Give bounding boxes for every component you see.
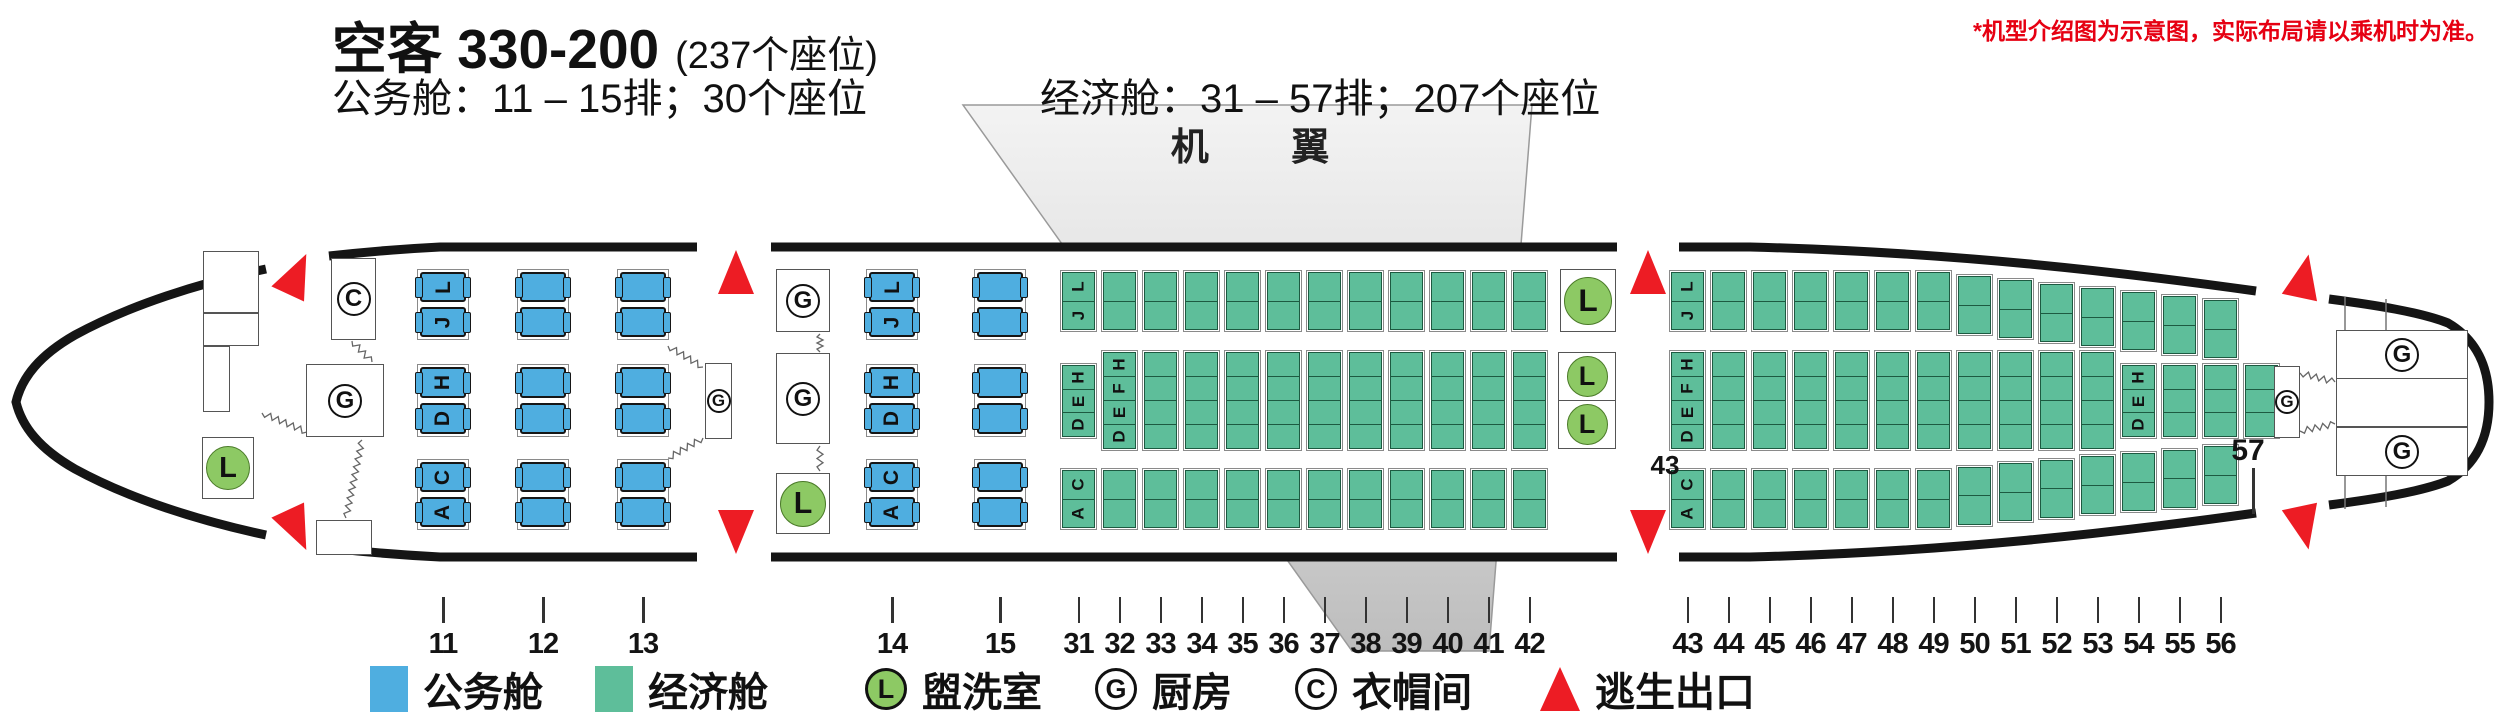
seat — [1513, 352, 1546, 377]
row-tick — [1406, 597, 1409, 623]
seat — [1226, 272, 1259, 302]
seat — [1144, 470, 1177, 500]
seat: H — [420, 367, 466, 398]
seat — [1431, 499, 1464, 529]
seat: F — [1671, 376, 1704, 401]
seat-column — [2120, 290, 2157, 352]
seat-letter: E — [2130, 395, 2147, 406]
seat-letter: A — [881, 504, 902, 519]
seat — [977, 307, 1023, 337]
seat-column — [2161, 294, 2198, 356]
row-number: 56 — [2198, 628, 2244, 661]
lavatory-icon: L — [1567, 404, 1608, 445]
compartment — [203, 346, 230, 412]
seat — [2204, 365, 2237, 390]
seat — [2040, 376, 2073, 401]
seat — [2122, 482, 2155, 512]
row-tick — [1892, 597, 1895, 623]
seat — [2122, 453, 2155, 483]
seat-letter: H — [881, 375, 902, 390]
row-tick — [1488, 597, 1491, 623]
lavatory-compartment: L — [1558, 352, 1616, 401]
seat — [1917, 301, 1950, 331]
seat — [2163, 325, 2196, 355]
seat — [1999, 424, 2032, 449]
galley-icon: G — [2385, 338, 2419, 372]
seat-column — [1183, 350, 1220, 451]
seat-column: HED — [1060, 363, 1097, 439]
galley-compartment: G — [306, 364, 384, 437]
seat — [1185, 352, 1218, 377]
seat-column — [1183, 270, 1220, 332]
seat — [1794, 400, 1827, 425]
seat — [977, 462, 1023, 492]
seat: L — [1062, 272, 1095, 302]
row-tick — [1119, 597, 1122, 623]
seat — [1226, 424, 1259, 449]
seat — [2163, 389, 2196, 414]
seat: H — [1103, 352, 1136, 377]
seat — [2040, 400, 2073, 425]
seat-column — [1874, 270, 1911, 332]
seat — [977, 497, 1023, 527]
seat-column — [1997, 278, 2034, 340]
seat: H — [1062, 365, 1095, 390]
row-tick — [1447, 597, 1450, 623]
row-number: 35 — [1220, 628, 1266, 661]
seat — [620, 367, 666, 398]
seat — [1103, 499, 1136, 529]
seat-column: HD — [866, 364, 918, 437]
seat — [1999, 463, 2032, 493]
seat-column — [2079, 286, 2116, 348]
row-tick — [442, 597, 445, 623]
row-tick — [1933, 597, 1936, 623]
seat — [520, 307, 566, 337]
seat — [1267, 400, 1300, 425]
seat: L — [420, 272, 466, 302]
seat-column — [517, 269, 569, 340]
row-number: 40 — [1425, 628, 1471, 661]
seat: D — [1671, 424, 1704, 449]
seat-column — [2161, 448, 2198, 510]
seat — [1513, 400, 1546, 425]
row-tick — [1810, 597, 1813, 623]
galley-compartment: G — [705, 363, 732, 439]
seat — [1999, 352, 2032, 377]
galley-compartment: G — [2274, 366, 2300, 438]
seat — [1308, 470, 1341, 500]
seat — [1513, 272, 1546, 302]
seat: E — [1671, 400, 1704, 425]
row-43-callout: 43 — [1643, 450, 1687, 481]
seat — [1185, 470, 1218, 500]
seat-letter: D — [881, 411, 902, 426]
seat — [1308, 301, 1341, 331]
seat — [1958, 305, 1991, 335]
seat — [1226, 352, 1259, 377]
closet-icon: C — [337, 282, 371, 316]
seat — [2081, 317, 2114, 347]
lavatory-compartment: L — [1560, 269, 1616, 332]
lavatory-compartment: L — [202, 437, 254, 499]
seat — [1712, 301, 1745, 331]
seat — [1390, 499, 1423, 529]
row-tick — [2220, 597, 2223, 623]
seat — [1308, 499, 1341, 529]
seat — [1349, 301, 1382, 331]
seat — [1185, 424, 1218, 449]
seat — [1308, 400, 1341, 425]
row-57-tick — [2252, 468, 2255, 514]
seat — [1876, 301, 1909, 331]
seat — [1753, 499, 1786, 529]
seat — [1794, 272, 1827, 302]
seat — [1103, 272, 1136, 302]
seat-column — [1224, 350, 1261, 451]
seat-column — [1429, 468, 1466, 530]
seat — [1267, 424, 1300, 449]
seat — [1185, 376, 1218, 401]
seat-letter: D — [1070, 419, 1087, 431]
seat: H — [869, 367, 915, 398]
seat — [1876, 352, 1909, 377]
seat — [1144, 400, 1177, 425]
seat-column — [2038, 350, 2075, 451]
row-tick — [1974, 597, 1977, 623]
seat — [1835, 352, 1868, 377]
seat-letter: A — [432, 504, 453, 519]
seat — [1226, 499, 1259, 529]
seat — [1226, 400, 1259, 425]
seat — [1835, 272, 1868, 302]
economy-class-info: 经济舱：31 – 57排；207个座位 — [1040, 66, 1600, 124]
seat-letter: L — [1070, 282, 1087, 292]
seat — [1917, 352, 1950, 377]
seat-column — [1142, 468, 1179, 530]
seat — [1876, 470, 1909, 500]
seat — [1753, 352, 1786, 377]
lavatory-icon: L — [206, 446, 250, 490]
seat-map-canvas: 机 翼 空客 330-200 (237个座位) 公务舱：11 – 15排；30个… — [0, 0, 2498, 717]
seat — [1835, 301, 1868, 331]
seat-column — [1470, 350, 1507, 451]
seat-column — [1915, 468, 1952, 530]
galley-compartment: G — [776, 353, 830, 444]
row-tick — [1242, 597, 1245, 623]
seat — [1144, 499, 1177, 529]
seat-column — [1792, 350, 1829, 451]
seat — [1390, 400, 1423, 425]
seat — [1185, 301, 1218, 331]
seat: D — [1062, 412, 1095, 437]
seat-column — [1915, 350, 1952, 451]
seat — [1753, 470, 1786, 500]
row-number: 14 — [869, 628, 915, 661]
seat — [1794, 376, 1827, 401]
seat: A — [869, 497, 915, 527]
row-tick — [2097, 597, 2100, 623]
seat — [2163, 450, 2196, 480]
seat-letter: J — [1070, 311, 1087, 320]
seat — [1390, 470, 1423, 500]
seat-column — [1306, 270, 1343, 332]
row-tick — [1529, 597, 1532, 623]
row-tick — [642, 597, 645, 623]
row-tick — [1687, 597, 1690, 623]
row-number: 53 — [2075, 628, 2121, 661]
seat-column — [1470, 270, 1507, 332]
row-number: 38 — [1343, 628, 1389, 661]
seat — [2040, 313, 2073, 343]
seat: H — [2122, 365, 2155, 390]
seat-column: LJ — [866, 269, 918, 340]
seat-letter: C — [1070, 479, 1087, 491]
row-number: 48 — [1870, 628, 1916, 661]
seat-column — [1429, 270, 1466, 332]
seat-column — [1183, 468, 1220, 530]
seat — [1267, 499, 1300, 529]
seat — [1185, 499, 1218, 529]
seat: D — [2122, 412, 2155, 437]
seat: D — [420, 403, 466, 434]
seat: A — [1671, 499, 1704, 529]
seat — [1513, 424, 1546, 449]
seat: J — [869, 307, 915, 337]
row-number: 15 — [977, 628, 1023, 661]
seat-column — [1265, 350, 1302, 451]
seat — [1226, 301, 1259, 331]
seat — [2081, 456, 2114, 486]
seat — [1226, 376, 1259, 401]
galley-icon: G — [786, 284, 820, 318]
seat-column — [1792, 270, 1829, 332]
seat — [1999, 280, 2032, 310]
seat — [1349, 352, 1382, 377]
seat-column — [617, 459, 669, 530]
seat-column: LJ — [1060, 270, 1097, 332]
seat — [1390, 376, 1423, 401]
row-number: 32 — [1097, 628, 1143, 661]
seat — [1349, 424, 1382, 449]
seat: C — [1062, 470, 1095, 500]
seat — [1267, 272, 1300, 302]
seat-column — [1429, 350, 1466, 451]
seat-column: CA — [1060, 468, 1097, 530]
seat-column — [1833, 350, 1870, 451]
seat-column — [1101, 270, 1138, 332]
seat — [1103, 470, 1136, 500]
seat-column — [2202, 363, 2239, 439]
seat — [1712, 424, 1745, 449]
seat — [1308, 376, 1341, 401]
seat — [1876, 376, 1909, 401]
seat — [2081, 352, 2114, 377]
seat — [1513, 301, 1546, 331]
seat — [1431, 301, 1464, 331]
row-number: 39 — [1384, 628, 1430, 661]
seat — [1712, 272, 1745, 302]
lavatory-icon: L — [1567, 356, 1608, 397]
seat-column — [1142, 270, 1179, 332]
seat — [1349, 400, 1382, 425]
seat — [1958, 495, 1991, 525]
seat — [2081, 485, 2114, 515]
seat — [1958, 467, 1991, 497]
row-tick — [2179, 597, 2182, 623]
seat — [2081, 424, 2114, 449]
seat-column — [1956, 274, 1993, 336]
seat — [620, 272, 666, 302]
seat — [977, 403, 1023, 434]
seat — [2204, 475, 2237, 505]
seat — [2163, 296, 2196, 326]
seat-column — [1915, 270, 1952, 332]
seat — [1917, 424, 1950, 449]
row-tick — [542, 597, 545, 623]
seat-column — [1265, 468, 1302, 530]
seat-column — [1956, 350, 1993, 451]
seat — [1999, 309, 2032, 339]
seat-letter: H — [432, 375, 453, 390]
seat-column — [2161, 363, 2198, 439]
seat-column: HFED — [1101, 350, 1138, 451]
seat-column — [2079, 350, 2116, 451]
row-tick — [1324, 597, 1327, 623]
row-number: 43 — [1665, 628, 1711, 661]
seat-column — [1792, 468, 1829, 530]
seat — [1472, 352, 1505, 377]
seat — [1876, 424, 1909, 449]
seat-column — [1511, 350, 1548, 451]
row-number: 50 — [1952, 628, 1998, 661]
seat — [1390, 301, 1423, 331]
seat-letter: D — [432, 411, 453, 426]
seat — [1349, 272, 1382, 302]
seat — [1876, 400, 1909, 425]
seat — [1917, 376, 1950, 401]
seat-letter: C — [432, 469, 453, 484]
seat-letter: C — [881, 469, 902, 484]
row-number: 46 — [1788, 628, 1834, 661]
row-tick — [1365, 597, 1368, 623]
seat-letter: L — [1679, 282, 1696, 292]
row-number: 51 — [1993, 628, 2039, 661]
seat: C — [420, 462, 466, 492]
seat — [1431, 352, 1464, 377]
seat-column — [1833, 468, 1870, 530]
lavatory-compartment: L — [1558, 400, 1616, 449]
seat: J — [1671, 301, 1704, 331]
seat — [520, 497, 566, 527]
seat-column: HD — [417, 364, 469, 437]
seat-column — [974, 269, 1026, 340]
seat-column: HFED — [1669, 350, 1706, 451]
seat: D — [1103, 424, 1136, 449]
seat: L — [869, 272, 915, 302]
seat — [1144, 376, 1177, 401]
row-number: 54 — [2116, 628, 2162, 661]
seat-letter: H — [2130, 371, 2147, 383]
seat-column — [1751, 350, 1788, 451]
seat: C — [869, 462, 915, 492]
seat: H — [1671, 352, 1704, 377]
row-number: 44 — [1706, 628, 1752, 661]
seat-letter: F — [1679, 383, 1696, 393]
row-57-callout: 57 — [2222, 434, 2274, 468]
seat — [1431, 470, 1464, 500]
row-number: 33 — [1138, 628, 1184, 661]
wing-label: 机 翼 — [1120, 116, 1380, 171]
seat — [1226, 470, 1259, 500]
seat — [1712, 499, 1745, 529]
row-number: 13 — [620, 628, 666, 661]
seat — [1472, 499, 1505, 529]
seat — [1753, 424, 1786, 449]
row-number: 34 — [1179, 628, 1225, 661]
seat-column — [1956, 465, 1993, 527]
seat — [1958, 352, 1991, 377]
seat-column — [1470, 468, 1507, 530]
row-tick — [1769, 597, 1772, 623]
seat — [620, 462, 666, 492]
seat — [520, 462, 566, 492]
seat — [1390, 272, 1423, 302]
seat-letter: H — [1070, 371, 1087, 383]
seat — [1876, 272, 1909, 302]
seat — [1349, 376, 1382, 401]
seat-column: LJ — [417, 269, 469, 340]
compartment — [203, 251, 259, 313]
row-tick — [1283, 597, 1286, 623]
seat — [1958, 376, 1991, 401]
seat-column — [1388, 270, 1425, 332]
row-number: 36 — [1261, 628, 1307, 661]
seat — [620, 307, 666, 337]
seat — [1349, 470, 1382, 500]
seat — [1267, 301, 1300, 331]
seat-letter: A — [1679, 507, 1696, 519]
seat — [1917, 272, 1950, 302]
seat-letter: H — [1679, 358, 1696, 370]
seat-letter: D — [1679, 430, 1696, 442]
seat-column — [1710, 350, 1747, 451]
row-number: 11 — [420, 628, 466, 661]
row-number: 37 — [1302, 628, 1348, 661]
seat-column — [2120, 451, 2157, 513]
seat-letter: L — [881, 281, 902, 294]
seat — [1431, 424, 1464, 449]
seat — [1185, 400, 1218, 425]
seat — [1472, 301, 1505, 331]
seat — [1712, 376, 1745, 401]
compartment — [316, 520, 372, 555]
row-tick — [1160, 597, 1163, 623]
seat — [1917, 499, 1950, 529]
seat — [1794, 424, 1827, 449]
seat: J — [1062, 301, 1095, 331]
seat-column — [1874, 468, 1911, 530]
seat-column — [2038, 458, 2075, 520]
seat — [1999, 400, 2032, 425]
seat — [1513, 376, 1546, 401]
seat-letter: H — [1111, 358, 1128, 370]
seat — [1267, 470, 1300, 500]
seat — [1999, 492, 2032, 522]
seat — [1794, 499, 1827, 529]
seat-column — [2038, 282, 2075, 344]
seat — [977, 272, 1023, 302]
